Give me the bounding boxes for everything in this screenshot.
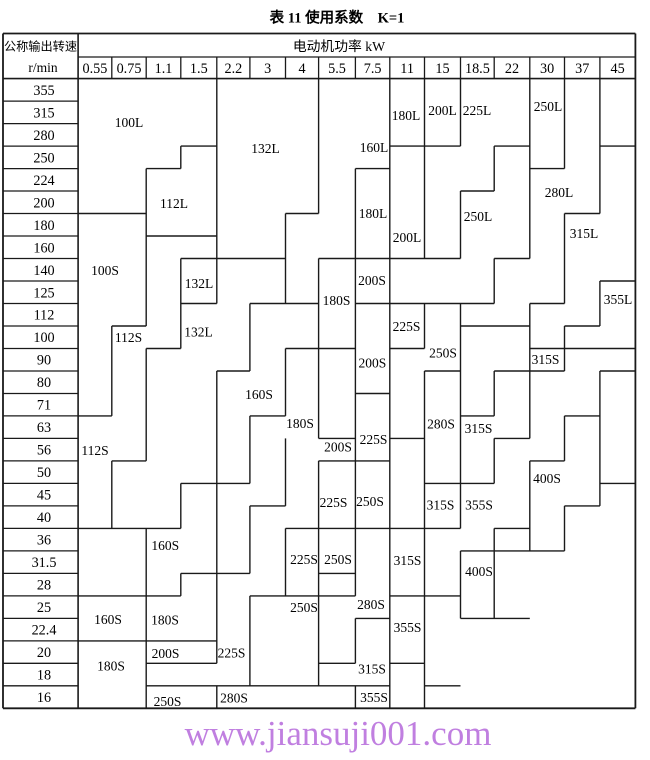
svg-text:315S: 315S [358, 661, 386, 676]
svg-text:200L: 200L [428, 103, 457, 118]
svg-text:37: 37 [575, 61, 589, 77]
svg-text:112: 112 [34, 308, 55, 324]
svg-text:31.5: 31.5 [32, 555, 57, 571]
svg-text:电动机功率 kW: 电动机功率 kW [293, 38, 385, 54]
svg-text:160S: 160S [245, 387, 273, 402]
svg-text:250S: 250S [356, 494, 384, 509]
svg-text:180: 180 [33, 218, 54, 234]
svg-text:250: 250 [33, 150, 54, 166]
svg-text:400S: 400S [533, 471, 561, 486]
svg-text:3: 3 [264, 61, 271, 77]
svg-text:315S: 315S [465, 421, 493, 436]
svg-text:71: 71 [37, 398, 51, 414]
svg-text:180S: 180S [97, 658, 125, 673]
svg-text:7.5: 7.5 [364, 61, 382, 77]
svg-text:45: 45 [37, 488, 51, 504]
svg-text:表 11 使用系数 K=1: 表 11 使用系数 K=1 [270, 9, 405, 27]
svg-text:200L: 200L [393, 230, 422, 245]
svg-text:315S: 315S [532, 352, 560, 367]
svg-text:11: 11 [400, 61, 414, 77]
svg-text:112S: 112S [81, 443, 108, 458]
svg-text:250L: 250L [464, 209, 493, 224]
svg-text:200S: 200S [152, 646, 180, 661]
svg-text:132L: 132L [185, 276, 214, 291]
svg-text:160: 160 [33, 240, 54, 256]
svg-text:200S: 200S [359, 355, 387, 370]
svg-text:36: 36 [37, 533, 51, 549]
svg-text:5.5: 5.5 [328, 61, 346, 77]
svg-text:250S: 250S [290, 600, 318, 615]
svg-text:18: 18 [37, 668, 51, 684]
svg-text:280S: 280S [357, 597, 385, 612]
svg-text:400S: 400S [465, 564, 493, 579]
svg-text:112L: 112L [160, 196, 188, 211]
svg-text:132L: 132L [251, 141, 280, 156]
svg-text:225S: 225S [290, 552, 318, 567]
svg-text:280S: 280S [427, 416, 455, 431]
svg-text:280L: 280L [545, 185, 574, 200]
svg-text:250S: 250S [154, 694, 182, 709]
svg-text:20: 20 [37, 645, 51, 661]
svg-text:50: 50 [37, 465, 51, 481]
svg-text:180L: 180L [359, 206, 388, 221]
svg-text:200: 200 [33, 195, 54, 211]
svg-text:160S: 160S [94, 612, 122, 627]
svg-text:112S: 112S [115, 330, 142, 345]
svg-text:0.55: 0.55 [82, 61, 107, 77]
svg-text:200S: 200S [324, 439, 352, 454]
svg-text:355S: 355S [394, 620, 422, 635]
svg-text:225S: 225S [218, 645, 246, 660]
svg-text:15: 15 [435, 61, 449, 77]
svg-text:公称输出转速: 公称输出转速 [4, 39, 77, 54]
svg-text:355S: 355S [465, 497, 493, 512]
svg-text:225S: 225S [360, 432, 388, 447]
svg-text:180L: 180L [392, 108, 421, 123]
svg-text:100L: 100L [115, 115, 144, 130]
svg-text:45: 45 [611, 61, 625, 77]
svg-text:160S: 160S [151, 538, 179, 553]
svg-text:280: 280 [33, 128, 54, 144]
svg-text:315L: 315L [570, 226, 599, 241]
svg-text:1.1: 1.1 [155, 61, 173, 77]
svg-text:140: 140 [33, 263, 54, 279]
svg-text:315: 315 [33, 105, 54, 121]
svg-text:25: 25 [37, 600, 51, 616]
svg-text:63: 63 [37, 420, 51, 436]
svg-text:2.2: 2.2 [225, 61, 243, 77]
svg-text:280S: 280S [220, 690, 248, 705]
svg-text:r/min: r/min [28, 60, 57, 75]
svg-text:22: 22 [505, 61, 519, 77]
svg-text:30: 30 [540, 61, 554, 77]
svg-text:225S: 225S [320, 495, 348, 510]
svg-text:80: 80 [37, 375, 51, 391]
svg-text:224: 224 [33, 173, 54, 189]
svg-text:16: 16 [37, 690, 51, 706]
svg-text:100: 100 [33, 330, 54, 346]
svg-text:200S: 200S [358, 273, 386, 288]
svg-text:160L: 160L [360, 140, 389, 155]
svg-text:315S: 315S [427, 497, 455, 512]
svg-text:355: 355 [33, 83, 54, 99]
svg-text:90: 90 [37, 353, 51, 369]
svg-text:125: 125 [33, 285, 54, 301]
svg-text:40: 40 [37, 510, 51, 526]
svg-text:4: 4 [299, 61, 306, 77]
svg-text:0.75: 0.75 [117, 61, 142, 77]
svg-text:225L: 225L [463, 103, 492, 118]
svg-text:355S: 355S [360, 690, 388, 705]
svg-text:1.5: 1.5 [190, 61, 208, 77]
svg-text:22.4: 22.4 [32, 623, 57, 639]
svg-text:315S: 315S [394, 553, 422, 568]
svg-text:56: 56 [37, 443, 51, 459]
svg-text:250S: 250S [429, 345, 457, 360]
svg-text:180S: 180S [151, 612, 179, 627]
svg-text:www.jiansuji001.com: www.jiansuji001.com [185, 714, 492, 753]
svg-text:180S: 180S [286, 416, 314, 431]
svg-text:28: 28 [37, 578, 51, 594]
svg-text:100S: 100S [91, 263, 119, 278]
svg-text:250L: 250L [534, 99, 563, 114]
svg-text:355L: 355L [604, 292, 633, 307]
svg-text:180S: 180S [323, 293, 351, 308]
svg-text:18.5: 18.5 [465, 61, 490, 77]
svg-text:132L: 132L [184, 324, 213, 339]
svg-text:250S: 250S [324, 552, 352, 567]
svg-text:225S: 225S [393, 319, 421, 334]
